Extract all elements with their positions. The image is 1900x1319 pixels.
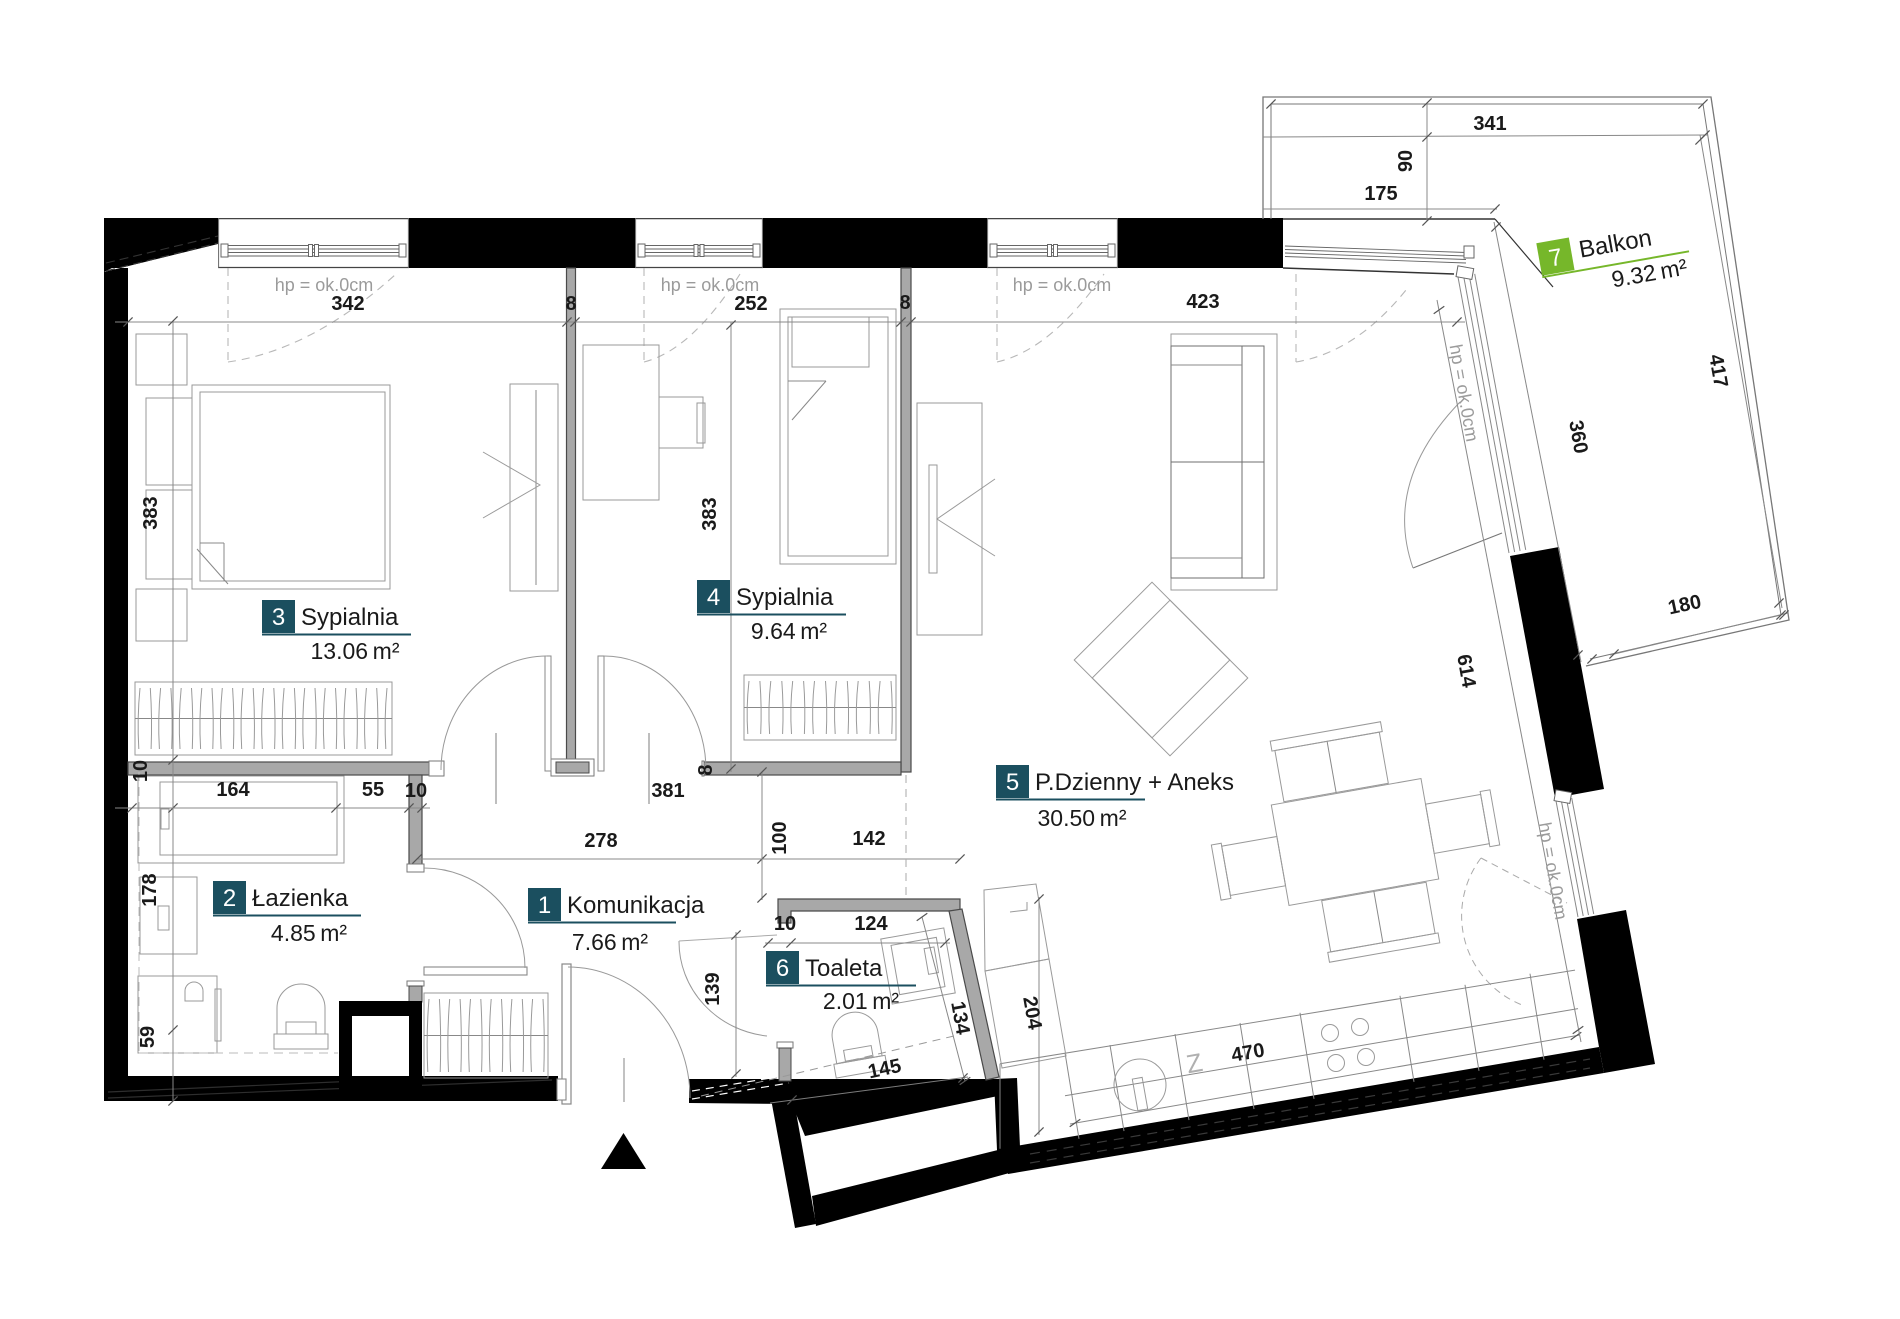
svg-text:139: 139 [702, 972, 724, 1005]
svg-text:164: 164 [216, 779, 250, 801]
svg-text:Komunikacja: Komunikacja [567, 892, 705, 919]
svg-text:2.01 m²: 2.01 m² [823, 988, 900, 1014]
svg-text:10: 10 [130, 760, 152, 782]
svg-text:252: 252 [734, 293, 767, 315]
svg-text:383: 383 [140, 496, 162, 529]
svg-text:178: 178 [139, 873, 161, 906]
svg-text:381: 381 [651, 780, 684, 802]
svg-text:341: 341 [1473, 113, 1506, 135]
svg-text:5: 5 [1006, 769, 1019, 796]
svg-text:142: 142 [852, 828, 885, 850]
svg-text:7.66 m²: 7.66 m² [572, 929, 649, 955]
svg-text:423: 423 [1186, 291, 1219, 313]
svg-text:10: 10 [405, 780, 427, 802]
svg-text:8: 8 [899, 292, 910, 314]
svg-text:90: 90 [1395, 150, 1417, 172]
svg-text:4.85 m²: 4.85 m² [271, 920, 348, 946]
svg-text:1: 1 [538, 892, 551, 919]
svg-text:124: 124 [854, 913, 888, 935]
svg-text:8: 8 [565, 293, 576, 315]
svg-text:10: 10 [774, 913, 796, 935]
svg-text:9.64 m²: 9.64 m² [751, 618, 828, 644]
svg-text:6: 6 [776, 955, 789, 982]
svg-text:100: 100 [769, 821, 791, 854]
svg-text:Sypialnia: Sypialnia [301, 604, 399, 631]
svg-text:hp = ok.0cm: hp = ok.0cm [661, 275, 760, 295]
svg-text:59: 59 [137, 1026, 159, 1048]
svg-text:4: 4 [707, 584, 720, 611]
svg-text:Sypialnia: Sypialnia [736, 584, 834, 611]
svg-text:13.06 m²: 13.06 m² [311, 638, 400, 664]
svg-text:383: 383 [699, 497, 721, 530]
svg-text:Łazienka: Łazienka [252, 885, 349, 912]
svg-text:175: 175 [1364, 183, 1397, 205]
svg-text:P.Dzienny + Aneks: P.Dzienny + Aneks [1035, 769, 1234, 796]
svg-text:2: 2 [223, 885, 236, 912]
svg-text:278: 278 [584, 830, 617, 852]
svg-text:hp = ok.0cm: hp = ok.0cm [275, 275, 374, 295]
svg-text:55: 55 [362, 779, 384, 801]
svg-text:8: 8 [695, 764, 717, 775]
svg-text:30.50 m²: 30.50 m² [1038, 805, 1127, 831]
svg-text:Toaleta: Toaleta [805, 955, 883, 982]
svg-text:3: 3 [272, 604, 285, 631]
svg-text:342: 342 [331, 293, 364, 315]
svg-text:hp = ok.0cm: hp = ok.0cm [1013, 275, 1112, 295]
